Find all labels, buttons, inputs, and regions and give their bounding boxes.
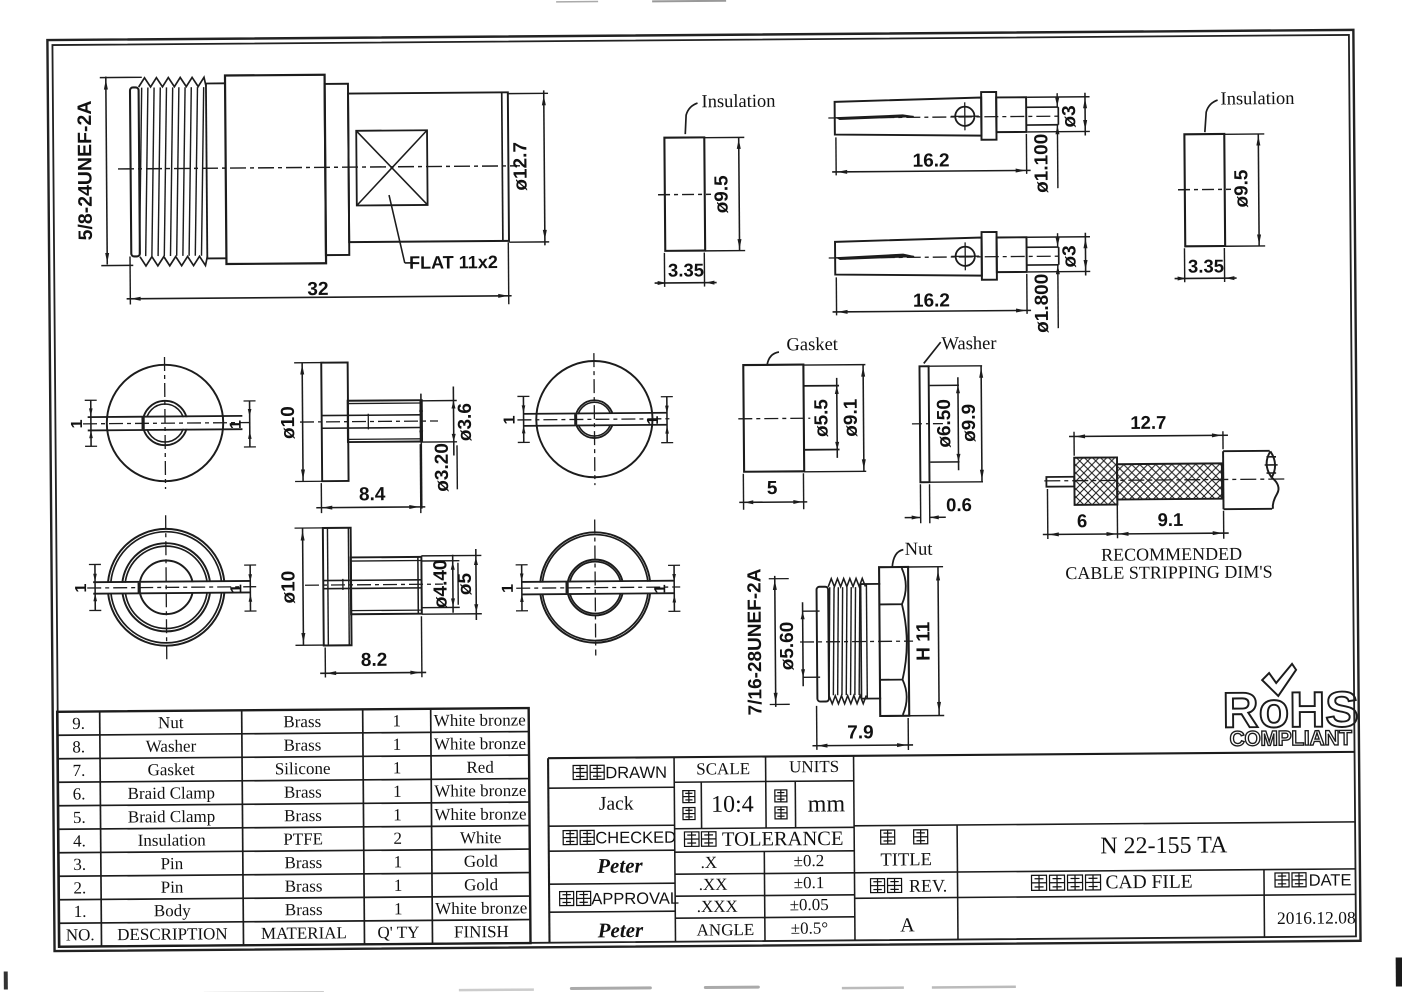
svg-text:REV.: REV. [909,876,947,896]
svg-text:White bronze: White bronze [435,898,527,918]
svg-text:Gasket: Gasket [786,335,838,355]
svg-text:Peter: Peter [597,918,644,942]
svg-text:1: 1 [392,711,401,730]
svg-text:1: 1 [394,852,403,871]
svg-text:Brass: Brass [283,712,321,731]
svg-text:ø1.100: ø1.100 [1031,134,1052,193]
svg-text:CHECKED: CHECKED [595,829,676,848]
svg-text:1: 1 [502,415,519,424]
svg-text:±0.1: ±0.1 [794,873,825,892]
svg-text:12.7: 12.7 [1130,412,1166,433]
svg-text:Nut: Nut [905,540,934,560]
svg-text:.X: .X [701,853,718,872]
svg-text:Brass: Brass [283,735,321,754]
svg-text:1: 1 [393,805,402,824]
svg-text:A: A [900,914,915,936]
svg-text:ø3.6: ø3.6 [455,403,476,441]
svg-text:ø3: ø3 [1059,245,1080,267]
svg-text:3.35: 3.35 [1188,255,1224,276]
svg-text:1: 1 [393,735,402,754]
svg-text:ø5: ø5 [455,572,476,595]
svg-text:1: 1 [394,899,403,918]
svg-text:1: 1 [394,876,403,895]
svg-text:.XX: .XX [699,875,728,894]
svg-text:2.: 2. [73,878,86,897]
svg-text:DESCRIPTION: DESCRIPTION [117,924,228,944]
svg-text:Braid Clamp: Braid Clamp [128,783,216,803]
svg-text:.XXX: .XXX [697,897,738,916]
svg-text:5.: 5. [73,808,86,827]
svg-text:Jack: Jack [599,794,634,815]
svg-text:Brass: Brass [285,900,323,919]
svg-text:TITLE: TITLE [880,850,932,870]
svg-text:Red: Red [466,758,494,777]
svg-text:ø5.5: ø5.5 [811,399,832,438]
svg-text:1: 1 [69,419,86,428]
svg-text:10:4: 10:4 [711,792,754,818]
svg-text:3.: 3. [73,855,86,874]
svg-text:White: White [460,828,502,847]
svg-text:3.35: 3.35 [668,259,704,280]
svg-text:ø5.60: ø5.60 [777,622,798,671]
svg-text:CABLE STRIPPING DIM'S: CABLE STRIPPING DIM'S [1065,562,1272,584]
svg-text:Washer: Washer [941,334,996,354]
svg-text:PTFE: PTFE [283,829,323,848]
svg-text:ø4.40: ø4.40 [430,559,451,608]
svg-text:6: 6 [1077,510,1087,531]
svg-text:32: 32 [307,279,328,300]
svg-text:ø12.7: ø12.7 [510,142,531,191]
svg-text:ø9.1: ø9.1 [841,398,862,437]
svg-text:ø3: ø3 [1059,105,1080,127]
svg-text:5/8-24UNEF-2A: 5/8-24UNEF-2A [74,101,97,241]
svg-text:APPROVAL: APPROVAL [591,890,679,909]
svg-text:4.: 4. [73,831,86,850]
svg-text:16.2: 16.2 [913,150,950,171]
svg-text:Brass: Brass [284,853,322,872]
svg-text:FINISH: FINISH [454,922,509,941]
svg-text:ø10: ø10 [278,406,299,439]
svg-text:±0.5°: ±0.5° [791,919,829,938]
svg-text:Brass: Brass [284,782,322,801]
svg-text:1: 1 [393,782,402,801]
svg-text:Peter: Peter [596,853,643,877]
svg-text:UNITS: UNITS [789,757,839,776]
svg-text:Silicone: Silicone [275,759,331,778]
svg-text:7/16-28UNEF-2A: 7/16-28UNEF-2A [744,568,766,715]
svg-text:Gold: Gold [464,875,499,894]
svg-text:8.4: 8.4 [359,484,386,505]
svg-text:MATERIAL: MATERIAL [261,923,347,943]
svg-text:White bronze: White bronze [434,781,526,801]
svg-text:7.9: 7.9 [847,722,874,743]
svg-text:±0.05: ±0.05 [790,895,829,914]
svg-text:CAD FILE: CAD FILE [1105,872,1192,894]
svg-text:1: 1 [645,416,662,425]
svg-text:1.: 1. [74,902,87,921]
svg-text:White bronze: White bronze [434,710,526,730]
svg-text:Braid Clamp: Braid Clamp [128,807,216,827]
svg-text:Body: Body [154,901,191,920]
svg-text:Gasket: Gasket [147,760,195,779]
svg-text:ø6.50: ø6.50 [934,399,955,448]
svg-text:TOLERANCE: TOLERANCE [722,828,844,851]
svg-text:mm: mm [808,791,846,817]
svg-text:Brass: Brass [285,876,323,895]
svg-text:2016.12.08: 2016.12.08 [1277,907,1356,928]
svg-text:1: 1 [500,584,517,593]
svg-text:ø10: ø10 [278,571,299,604]
svg-text:6.: 6. [73,784,86,803]
svg-text:1: 1 [393,758,402,777]
svg-text:Q' TY: Q' TY [377,923,419,942]
svg-text:16.2: 16.2 [913,290,950,311]
svg-text:9.1: 9.1 [1157,509,1183,530]
svg-text:Insulation: Insulation [701,92,775,113]
svg-text:NO.: NO. [66,925,95,944]
svg-text:ANGLE: ANGLE [697,920,755,939]
svg-text:±0.2: ±0.2 [793,851,824,870]
svg-text:1: 1 [228,584,245,593]
svg-text:H 11: H 11 [913,621,934,661]
svg-text:0.6: 0.6 [946,494,972,515]
svg-text:Washer: Washer [146,736,197,755]
svg-text:1: 1 [652,584,669,593]
svg-text:1: 1 [73,583,90,592]
svg-text:DRAWN: DRAWN [605,764,667,782]
svg-text:5: 5 [767,478,778,499]
svg-text:DATE: DATE [1309,871,1352,889]
svg-text:ø9.9: ø9.9 [959,404,980,442]
svg-text:2: 2 [393,829,402,848]
svg-text:ø9.5: ø9.5 [1231,169,1252,208]
svg-text:N 22-155 TA: N 22-155 TA [1100,832,1228,859]
svg-text:Nut: Nut [158,713,184,732]
svg-text:COMPLIANT: COMPLIANT [1229,727,1352,751]
svg-text:ø1.800: ø1.800 [1032,274,1053,333]
svg-text:Pin: Pin [161,878,184,897]
svg-text:8.2: 8.2 [361,650,388,671]
svg-text:SCALE: SCALE [696,759,750,778]
svg-text:Insulation: Insulation [1220,89,1294,110]
svg-text:White bronze: White bronze [434,804,526,824]
svg-text:ø9.5: ø9.5 [711,175,732,214]
svg-text:9.: 9. [72,714,85,733]
svg-text:ø3.20: ø3.20 [432,443,453,492]
svg-text:White bronze: White bronze [434,734,526,754]
svg-text:Brass: Brass [284,806,322,825]
svg-text:1: 1 [228,420,245,429]
svg-text:8.: 8. [72,737,85,756]
svg-text:Gold: Gold [464,852,499,871]
svg-text:FLAT 11x2: FLAT 11x2 [409,252,498,273]
svg-text:Pin: Pin [160,854,183,873]
svg-text:Insulation: Insulation [138,830,207,850]
svg-text:7.: 7. [72,761,85,780]
